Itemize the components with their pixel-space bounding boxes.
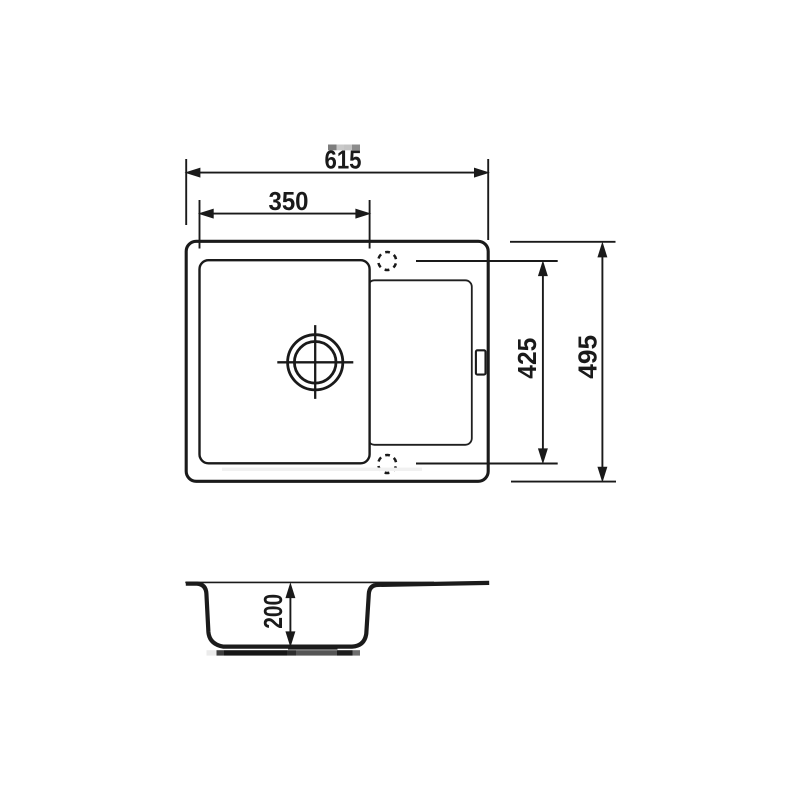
- svg-text:200: 200: [258, 594, 288, 629]
- svg-text:495: 495: [573, 335, 603, 379]
- svg-text:350: 350: [269, 186, 309, 216]
- svg-text:425: 425: [512, 338, 542, 379]
- svg-text:615: 615: [325, 144, 362, 174]
